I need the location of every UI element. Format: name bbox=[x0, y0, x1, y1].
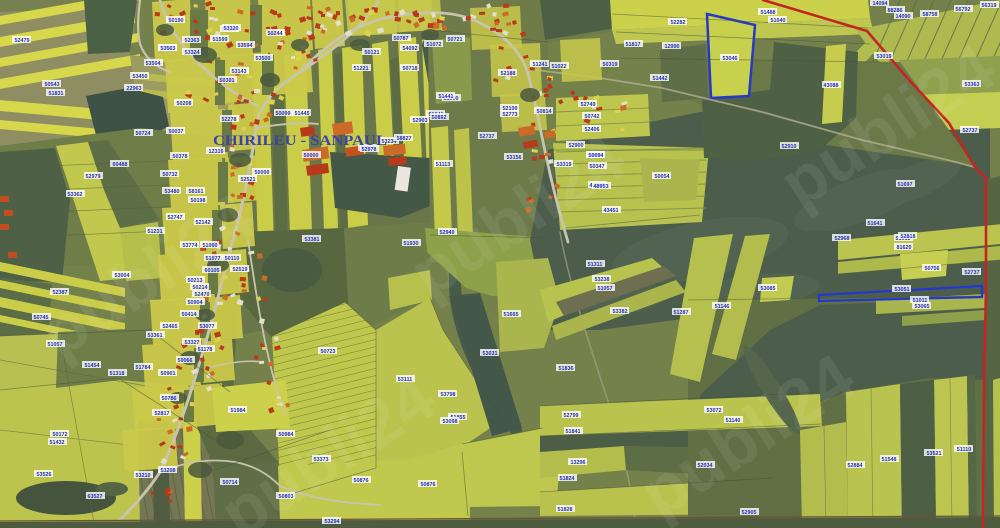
svg-text:14094: 14094 bbox=[873, 1, 888, 7]
svg-text:53362: 53362 bbox=[68, 192, 83, 198]
svg-text:52900: 52900 bbox=[569, 143, 584, 149]
svg-text:50543: 50543 bbox=[45, 82, 60, 88]
svg-text:53210: 53210 bbox=[136, 473, 151, 479]
svg-text:51599: 51599 bbox=[213, 37, 228, 43]
svg-text:50904: 50904 bbox=[188, 300, 203, 306]
svg-text:51665: 51665 bbox=[504, 312, 519, 318]
svg-text:51831: 51831 bbox=[49, 91, 64, 97]
svg-text:53521: 53521 bbox=[927, 451, 942, 457]
svg-text:50244: 50244 bbox=[268, 31, 283, 37]
svg-text:50787: 50787 bbox=[394, 36, 409, 42]
svg-text:50876: 50876 bbox=[354, 478, 369, 484]
svg-text:53373: 53373 bbox=[314, 457, 329, 463]
svg-text:52968: 52968 bbox=[835, 236, 850, 242]
svg-text:51110: 51110 bbox=[957, 447, 971, 453]
svg-text:53798: 53798 bbox=[441, 392, 456, 398]
svg-text:53238: 53238 bbox=[595, 277, 610, 283]
svg-text:51817: 51817 bbox=[626, 42, 641, 48]
svg-text:50037: 50037 bbox=[169, 129, 184, 135]
svg-text:52470: 52470 bbox=[195, 292, 210, 298]
svg-text:53320: 53320 bbox=[224, 26, 239, 32]
svg-text:52905: 52905 bbox=[742, 510, 757, 516]
svg-text:52818: 52818 bbox=[901, 234, 916, 240]
svg-text:51984: 51984 bbox=[231, 408, 246, 414]
svg-text:52406: 52406 bbox=[585, 127, 600, 133]
svg-text:52282: 52282 bbox=[671, 20, 686, 26]
svg-text:50378: 50378 bbox=[173, 154, 188, 160]
svg-text:52034: 52034 bbox=[698, 463, 713, 469]
svg-text:50094: 50094 bbox=[589, 153, 604, 159]
svg-text:53594: 53594 bbox=[238, 43, 253, 49]
svg-text:53156: 53156 bbox=[507, 155, 522, 161]
svg-text:50099: 50099 bbox=[276, 111, 291, 117]
svg-text:51057: 51057 bbox=[598, 286, 613, 292]
svg-text:52817: 52817 bbox=[155, 411, 170, 417]
svg-text:50901: 50901 bbox=[161, 371, 176, 377]
svg-text:54092: 54092 bbox=[403, 46, 418, 52]
svg-text:51022: 51022 bbox=[552, 64, 567, 70]
svg-text:50723: 50723 bbox=[321, 349, 336, 355]
svg-text:53111: 53111 bbox=[398, 377, 412, 383]
svg-text:52773: 52773 bbox=[503, 112, 518, 118]
svg-text:51231: 51231 bbox=[148, 229, 163, 235]
svg-text:53774: 53774 bbox=[183, 243, 198, 249]
svg-text:50721: 50721 bbox=[448, 37, 463, 43]
svg-text:51697: 51697 bbox=[898, 182, 913, 188]
svg-text:51178: 51178 bbox=[198, 347, 213, 353]
svg-text:53319: 53319 bbox=[557, 162, 572, 168]
svg-text:52737: 52737 bbox=[963, 128, 978, 134]
svg-text:52979: 52979 bbox=[86, 174, 101, 180]
svg-text:CHIRILEU - SANPAUL: CHIRILEU - SANPAUL bbox=[213, 133, 387, 149]
svg-text:53500: 53500 bbox=[256, 56, 271, 62]
svg-text:56792: 56792 bbox=[956, 7, 971, 13]
svg-text:12316: 12316 bbox=[209, 149, 224, 155]
svg-text:53004: 53004 bbox=[115, 273, 130, 279]
svg-text:63527: 63527 bbox=[88, 494, 103, 500]
svg-text:43088: 43088 bbox=[824, 83, 839, 89]
svg-text:60105: 60105 bbox=[205, 268, 220, 274]
svg-text:51454: 51454 bbox=[85, 363, 100, 369]
svg-text:50347: 50347 bbox=[590, 164, 605, 170]
svg-text:50876: 50876 bbox=[421, 482, 436, 488]
svg-text:51287: 51287 bbox=[674, 310, 689, 316]
svg-text:51311: 51311 bbox=[588, 262, 603, 268]
svg-text:52799: 52799 bbox=[564, 413, 579, 419]
svg-text:50745: 50745 bbox=[34, 315, 49, 321]
svg-text:53208: 53208 bbox=[161, 468, 176, 474]
svg-text:50714: 50714 bbox=[223, 480, 238, 486]
svg-text:51221: 51221 bbox=[354, 66, 369, 72]
svg-text:53480: 53480 bbox=[165, 189, 180, 195]
svg-text:50301: 50301 bbox=[220, 78, 235, 84]
svg-text:50066: 50066 bbox=[178, 358, 193, 364]
svg-text:60488: 60488 bbox=[113, 162, 128, 168]
svg-text:12990: 12990 bbox=[665, 44, 680, 50]
svg-text:51040: 51040 bbox=[771, 18, 786, 24]
svg-text:51841: 51841 bbox=[566, 429, 581, 435]
svg-text:50756: 50756 bbox=[925, 266, 940, 272]
svg-text:51548: 51548 bbox=[882, 457, 897, 463]
svg-text:52465: 52465 bbox=[163, 324, 178, 330]
svg-text:53526: 53526 bbox=[37, 472, 52, 478]
svg-text:50742: 50742 bbox=[585, 114, 600, 120]
svg-text:50803: 50803 bbox=[279, 494, 294, 500]
svg-text:52737: 52737 bbox=[480, 134, 495, 140]
svg-text:48953: 48953 bbox=[594, 184, 609, 190]
svg-text:51836: 51836 bbox=[559, 366, 574, 372]
svg-text:51318: 51318 bbox=[110, 371, 125, 377]
svg-text:50172: 50172 bbox=[53, 432, 68, 438]
svg-text:53077: 53077 bbox=[200, 324, 215, 330]
svg-text:52910: 52910 bbox=[782, 144, 797, 150]
svg-text:50892: 50892 bbox=[432, 115, 447, 121]
svg-text:53382: 53382 bbox=[613, 309, 628, 315]
svg-text:52363: 52363 bbox=[185, 38, 200, 44]
svg-text:52903: 52903 bbox=[413, 118, 428, 124]
svg-text:53324: 53324 bbox=[185, 50, 200, 56]
svg-text:53363: 53363 bbox=[965, 82, 980, 88]
svg-text:50718: 50718 bbox=[403, 66, 418, 72]
svg-text:51824: 51824 bbox=[560, 476, 575, 482]
svg-text:53381: 53381 bbox=[305, 237, 320, 243]
svg-text:53031: 53031 bbox=[483, 351, 498, 357]
svg-text:13296: 13296 bbox=[571, 460, 586, 466]
svg-text:51140: 51140 bbox=[726, 418, 741, 424]
svg-text:53019: 53019 bbox=[877, 54, 892, 60]
svg-text:52142: 52142 bbox=[196, 220, 211, 226]
svg-text:53085: 53085 bbox=[761, 286, 776, 292]
svg-text:52747: 52747 bbox=[168, 215, 183, 221]
svg-text:50208: 50208 bbox=[177, 101, 192, 107]
svg-text:53046: 53046 bbox=[723, 56, 738, 62]
svg-text:53065: 53065 bbox=[915, 304, 930, 310]
svg-text:50198: 50198 bbox=[191, 198, 206, 204]
svg-text:52521: 52521 bbox=[241, 177, 256, 183]
svg-text:22963: 22963 bbox=[127, 86, 142, 92]
svg-text:50190: 50190 bbox=[169, 18, 184, 24]
svg-text:50984: 50984 bbox=[279, 432, 294, 438]
svg-text:52519: 52519 bbox=[233, 267, 248, 273]
svg-text:52737: 52737 bbox=[965, 270, 980, 276]
svg-text:52884: 52884 bbox=[848, 463, 863, 469]
svg-text:50732: 50732 bbox=[163, 172, 178, 178]
svg-text:56319: 56319 bbox=[982, 3, 997, 9]
svg-text:51072: 51072 bbox=[427, 42, 442, 48]
svg-text:58758: 58758 bbox=[923, 12, 938, 18]
svg-text:50414: 50414 bbox=[182, 312, 197, 318]
svg-text:50319: 50319 bbox=[603, 62, 618, 68]
svg-text:52940: 52940 bbox=[440, 230, 455, 236]
svg-text:50814: 50814 bbox=[537, 109, 552, 115]
svg-text:81620: 81620 bbox=[897, 245, 912, 251]
svg-text:51442: 51442 bbox=[653, 76, 668, 82]
svg-text:51432: 51432 bbox=[50, 440, 65, 446]
svg-text:53051: 53051 bbox=[895, 287, 910, 293]
svg-text:52749: 52749 bbox=[581, 102, 596, 108]
svg-text:53072: 53072 bbox=[707, 408, 722, 414]
svg-text:51930: 51930 bbox=[404, 241, 419, 247]
svg-text:51441: 51441 bbox=[439, 94, 454, 100]
svg-text:51000: 51000 bbox=[203, 243, 218, 249]
svg-text:51241: 51241 bbox=[533, 62, 548, 68]
svg-text:53143: 53143 bbox=[232, 69, 247, 75]
svg-text:51784: 51784 bbox=[136, 365, 151, 371]
svg-text:53503: 53503 bbox=[161, 46, 176, 52]
svg-text:51146: 51146 bbox=[715, 304, 730, 310]
svg-text:52387: 52387 bbox=[53, 290, 68, 296]
svg-text:14090: 14090 bbox=[896, 14, 911, 20]
svg-text:43451: 43451 bbox=[604, 208, 619, 214]
svg-text:51445: 51445 bbox=[295, 111, 310, 117]
svg-text:58827: 58827 bbox=[397, 136, 412, 142]
svg-text:50121: 50121 bbox=[365, 50, 380, 56]
svg-text:53361: 53361 bbox=[148, 333, 163, 339]
svg-text:51828: 51828 bbox=[558, 507, 573, 513]
svg-text:51057: 51057 bbox=[48, 342, 63, 348]
svg-text:52188: 52188 bbox=[501, 71, 516, 77]
svg-text:52278: 52278 bbox=[222, 117, 237, 123]
svg-text:50054: 50054 bbox=[655, 174, 670, 180]
svg-text:51077: 51077 bbox=[206, 256, 221, 262]
svg-text:53504: 53504 bbox=[146, 61, 161, 67]
svg-text:51113: 51113 bbox=[436, 162, 450, 168]
svg-text:51641: 51641 bbox=[868, 221, 883, 227]
svg-text:58161: 58161 bbox=[189, 189, 204, 195]
svg-text:52479: 52479 bbox=[15, 38, 30, 44]
svg-text:51488: 51488 bbox=[761, 10, 776, 16]
svg-text:50786: 50786 bbox=[162, 396, 177, 402]
svg-text:53450: 53450 bbox=[133, 74, 148, 80]
svg-text:53294: 53294 bbox=[325, 519, 340, 525]
svg-text:50724: 50724 bbox=[136, 131, 151, 137]
svg-text:50000: 50000 bbox=[304, 153, 319, 159]
svg-text:53098: 53098 bbox=[443, 419, 458, 425]
svg-text:50110: 50110 bbox=[225, 256, 240, 262]
